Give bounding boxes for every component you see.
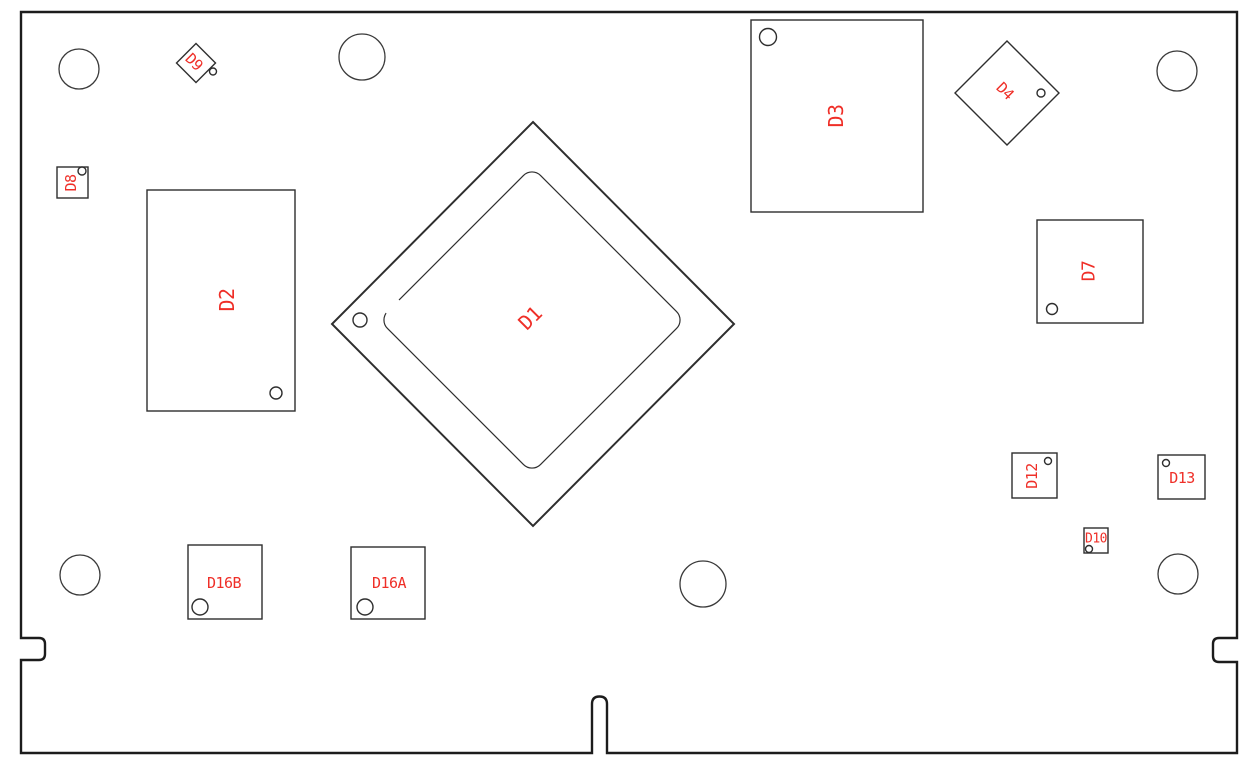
component-D3: D3: [751, 20, 923, 212]
pin1-marker: [1086, 546, 1093, 553]
pin1-marker: [78, 167, 86, 175]
pin1-marker: [353, 313, 367, 327]
component-D1: D1: [332, 122, 734, 526]
pin1-marker: [1163, 460, 1170, 467]
board-drawing: D1 D2 D3 D4 D7 D8: [0, 0, 1257, 767]
component-D12: D12: [1012, 453, 1057, 498]
mounting-hole: [59, 49, 99, 89]
designator-D16B: D16B: [207, 574, 242, 592]
pcb-assembly-drawing: D1 D2 D3 D4 D7 D8: [0, 0, 1257, 767]
component-D13: D13: [1158, 455, 1205, 499]
mounting-hole: [339, 34, 385, 80]
component-D7: D7: [1037, 220, 1143, 323]
component-D10: D10: [1084, 528, 1108, 553]
component-D4: D4: [955, 41, 1059, 145]
component-D9: D9: [177, 44, 217, 83]
designator-D7: D7: [1079, 261, 1100, 282]
designator-D16A: D16A: [372, 574, 407, 592]
designator-D12: D12: [1023, 463, 1041, 489]
mounting-hole: [60, 555, 100, 595]
pin1-marker: [1047, 304, 1058, 315]
component-D16B: D16B: [188, 545, 262, 619]
designator-D8: D8: [62, 174, 80, 192]
pin1-marker: [1045, 458, 1052, 465]
pin1-marker: [210, 68, 217, 75]
pin1-marker: [760, 29, 777, 46]
mounting-hole: [680, 561, 726, 607]
designator-D10: D10: [1085, 532, 1107, 547]
designator-D13: D13: [1169, 469, 1195, 487]
component-D8: D8: [57, 167, 88, 198]
pin1-marker: [357, 599, 373, 615]
component-D16A: D16A: [351, 547, 425, 619]
mounting-hole: [1158, 554, 1198, 594]
component-D2: D2: [147, 190, 295, 411]
pin1-marker: [1037, 89, 1045, 97]
mounting-hole: [1157, 51, 1197, 91]
designator-D3: D3: [824, 104, 848, 127]
pin1-marker: [270, 387, 282, 399]
designator-D2: D2: [215, 288, 239, 311]
pin1-marker: [192, 599, 208, 615]
